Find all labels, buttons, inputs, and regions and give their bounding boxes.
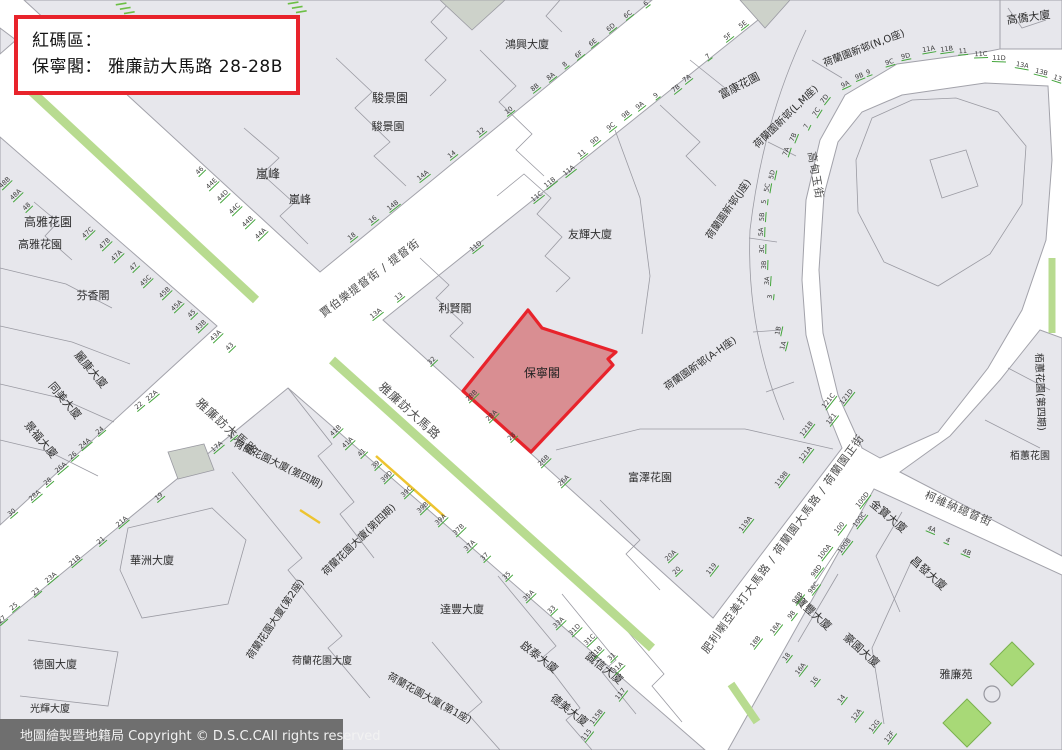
house-number: 3B [760,260,768,270]
house-number: 5B [758,212,767,223]
house-number: 11B [939,44,954,54]
alert-line-1: 紅碼區： [32,28,284,54]
building-label: 荷蘭花園大廈 [292,654,352,667]
svg-text:3A: 3A [763,276,772,286]
building-label: 鴻興大廈 [505,37,549,51]
house-number: 3C [758,244,766,254]
copyright-text: 地圖繪製暨地籍局 Copyright © D.S.C.CAll rights r… [0,725,381,744]
red-zone-label: 保寧閣 [524,365,560,380]
building-label: 富澤花園 [628,470,672,484]
map-viewport[interactable]: 雅廉訪大馬路雅廉訪大馬路賈伯樂提督街 / 提督街肥利喇亞美打大馬路 / 荷蘭園大… [0,0,1062,750]
building-label: 華洲大廈 [130,553,174,567]
house-number: 11C [974,50,988,58]
house-number: 5A [757,227,765,237]
building-label: 利賢閣 [439,302,472,315]
copyright-bar: 地圖繪製暨地籍局 Copyright © D.S.C.CAll rights r… [0,719,343,750]
house-number: 3A [763,276,772,287]
svg-text:5: 5 [760,199,768,204]
building-label: 高雅花園 [18,237,62,251]
alert-line-2: 保寧閣： 雅廉訪大馬路 28-28B [32,54,284,80]
building-label: 芬香閣 [77,289,110,302]
map-canvas: 雅廉訪大馬路雅廉訪大馬路賈伯樂提督街 / 提督街肥利喇亞美打大馬路 / 荷蘭園大… [0,0,1062,750]
building-label: 駿景園 [372,119,405,133]
building-label: 嵐峰 [289,193,311,206]
red-zone-alert-box: 紅碼區： 保寧閣： 雅廉訪大馬路 28-28B [14,15,300,95]
svg-text:3B: 3B [760,260,768,269]
house-number: 11 [957,47,968,56]
building-label: 德園大廈 [33,657,77,671]
house-number: 11D [992,54,1006,62]
svg-text:5B: 5B [758,212,767,221]
svg-text:3: 3 [766,294,774,299]
building-label: 嵐峰 [256,167,280,181]
svg-text:11C: 11C [974,50,988,58]
building-label: 雅廉苑 [940,667,973,681]
svg-text:5A: 5A [757,227,765,236]
building-label: 駿景園 [372,91,408,105]
svg-text:3C: 3C [758,244,766,253]
building-label: 友輝大廈 [568,227,612,241]
building-label: 栢蕙花園 [1010,449,1050,462]
svg-text:11D: 11D [992,54,1006,62]
building-label: 高雅花園 [24,214,72,229]
building-label: 達豐大廈 [440,602,484,616]
building-label: 光輝大廈 [30,702,70,715]
